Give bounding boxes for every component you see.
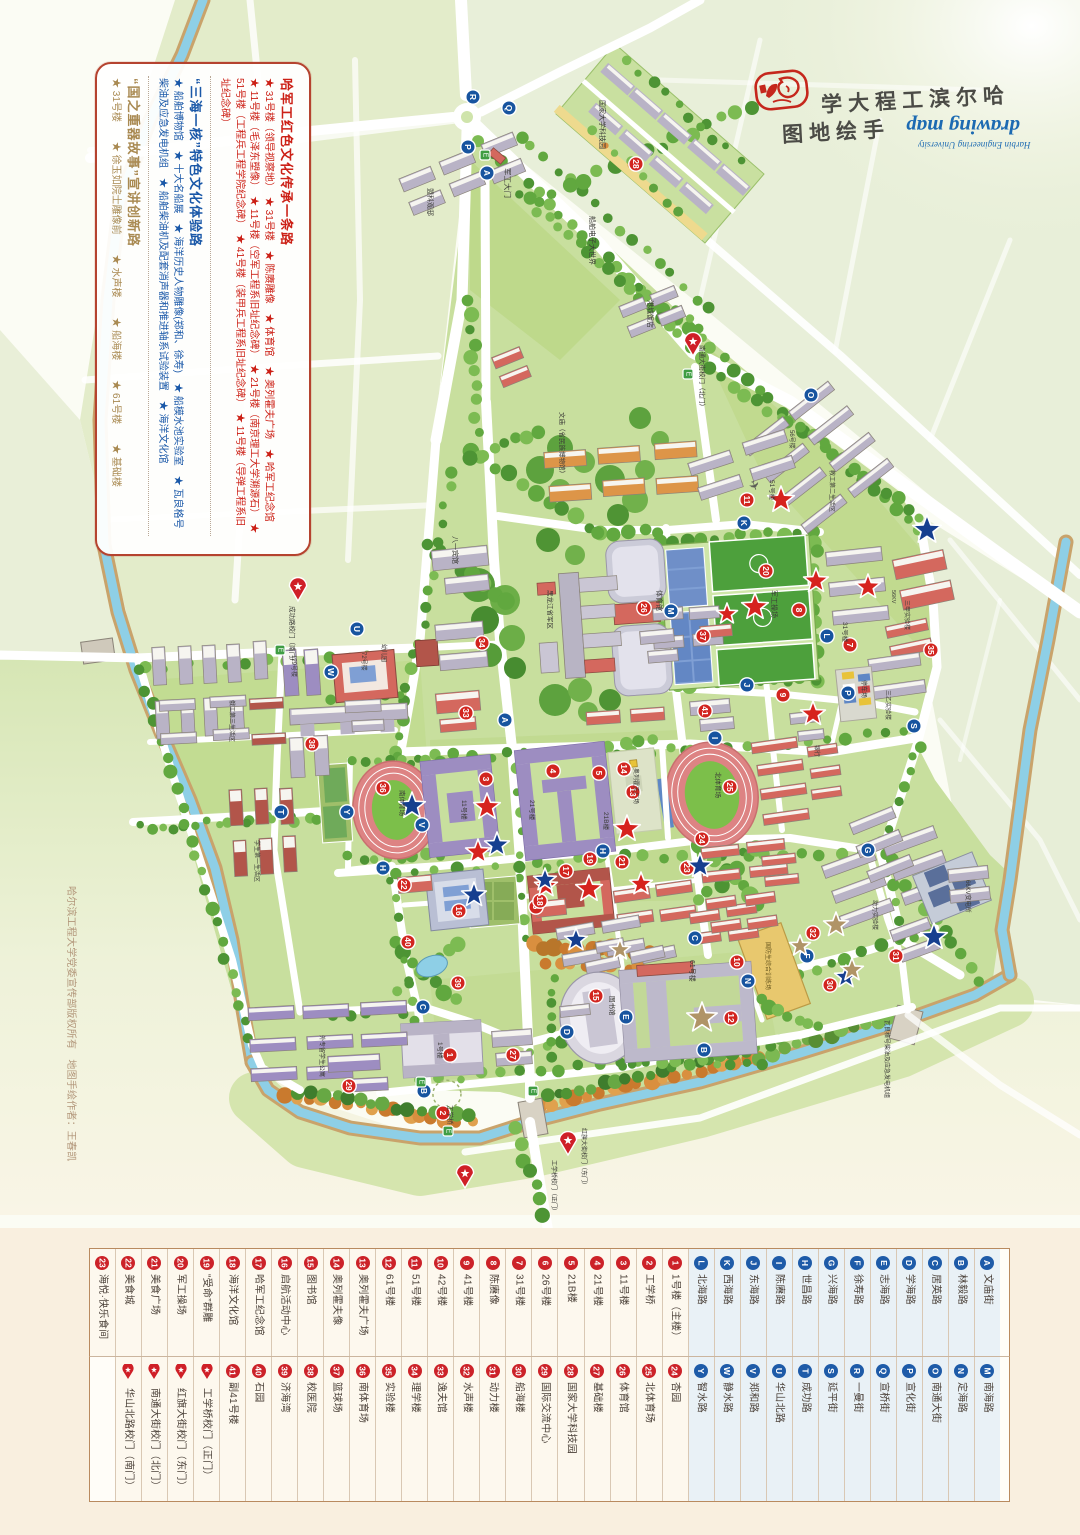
svg-text:国防生综合训练场: 国防生综合训练场: [764, 942, 772, 990]
svg-text:8: 8: [794, 608, 804, 613]
svg-text:56KV: 56KV: [890, 590, 896, 604]
svg-text:M: M: [666, 607, 676, 614]
svg-text:Q: Q: [504, 105, 514, 112]
svg-text:南体育场: 南体育场: [398, 790, 407, 817]
svg-text:S: S: [909, 723, 919, 729]
svg-text:1号楼: 1号楼: [436, 1042, 445, 1059]
svg-text:G: G: [863, 847, 873, 854]
svg-text:4: 4: [548, 769, 558, 774]
svg-text:18: 18: [535, 896, 545, 906]
svg-text:体育馆: 体育馆: [655, 590, 664, 611]
svg-text:21B楼: 21B楼: [602, 812, 611, 831]
svg-text:工学桥: 工学桥: [446, 1105, 455, 1125]
svg-text:11: 11: [742, 496, 752, 505]
svg-text:24: 24: [697, 834, 707, 844]
svg-text:学生第一生活区: 学生第一生活区: [253, 840, 261, 882]
svg-text:19: 19: [585, 854, 595, 864]
svg-text:12: 12: [726, 1013, 736, 1023]
svg-text:动力实验楼: 动力实验楼: [871, 900, 879, 930]
svg-text:T: T: [276, 809, 286, 815]
svg-text:21号楼: 21号楼: [528, 800, 537, 821]
svg-text:37: 37: [698, 631, 708, 641]
svg-text:14: 14: [619, 764, 629, 774]
svg-text:三乙实验楼: 三乙实验楼: [884, 690, 892, 720]
svg-text:31号楼: 31号楼: [841, 622, 850, 643]
svg-text:停车场: 停车场: [860, 680, 868, 698]
svg-text:E: E: [685, 372, 692, 377]
svg-text:俄工第三生活区: 俄工第三生活区: [228, 700, 236, 742]
svg-text:B: B: [419, 1088, 429, 1094]
svg-text:K: K: [739, 520, 749, 527]
svg-text:W: W: [326, 668, 336, 677]
svg-text:15: 15: [591, 991, 601, 1001]
svg-text:11号楼: 11号楼: [460, 800, 469, 820]
svg-text:黑龙江省军区: 黑龙江省军区: [546, 590, 555, 630]
svg-text:27: 27: [508, 1050, 518, 1060]
svg-text:E: E: [277, 648, 284, 653]
svg-text:41: 41: [700, 706, 710, 716]
svg-text:图书馆: 图书馆: [608, 996, 617, 1016]
svg-text:C: C: [418, 1004, 428, 1010]
svg-text:C: C: [690, 935, 700, 941]
svg-text:港城饭店: 港城饭店: [646, 300, 655, 328]
svg-text:31: 31: [891, 951, 901, 961]
svg-text:E: E: [445, 1129, 452, 1134]
svg-text:61号楼: 61号楼: [688, 960, 697, 982]
svg-text:R: R: [468, 94, 478, 100]
svg-text:P: P: [463, 144, 473, 150]
svg-text:L: L: [822, 633, 832, 638]
svg-text:16: 16: [454, 906, 464, 916]
svg-text:P: P: [843, 690, 853, 696]
svg-text:A: A: [482, 170, 492, 176]
svg-text:25: 25: [725, 782, 735, 792]
svg-text:E: E: [418, 1080, 425, 1085]
svg-text:J: J: [742, 683, 752, 688]
svg-text:7: 7: [845, 643, 855, 648]
svg-text:南通大街校门（北门）: 南通大街校门（北门）: [698, 345, 707, 410]
svg-text:外专留学生公寓: 外专留学生公寓: [318, 1035, 326, 1077]
svg-text:A: A: [500, 717, 510, 723]
svg-text:三甲实验楼: 三甲实验楼: [903, 600, 911, 630]
svg-text:E: E: [530, 1089, 537, 1094]
svg-text:Y: Y: [342, 809, 352, 815]
svg-text:36: 36: [378, 783, 388, 793]
svg-text:22: 22: [399, 880, 409, 890]
svg-text:O: O: [806, 392, 816, 399]
svg-text:29: 29: [344, 1081, 354, 1091]
svg-text:10: 10: [732, 957, 742, 967]
svg-text:工学桥校门（正门）: 工学桥校门（正门）: [550, 1160, 558, 1214]
svg-text:39: 39: [453, 978, 463, 988]
svg-text:28: 28: [631, 159, 641, 169]
svg-text:17: 17: [561, 866, 571, 876]
svg-text:八一宾馆: 八一宾馆: [451, 536, 460, 564]
svg-text:U: U: [352, 626, 362, 632]
svg-text:40: 40: [403, 937, 413, 947]
svg-text:文庙（省民族博物馆）: 文庙（省民族博物馆）: [558, 412, 567, 477]
svg-text:军工操场: 军工操场: [770, 590, 779, 618]
svg-text:32: 32: [808, 928, 818, 938]
svg-text:I: I: [710, 737, 720, 739]
svg-text:E: E: [621, 1014, 631, 1020]
svg-text:B: B: [699, 1047, 709, 1053]
svg-text:红旗大街校门（东门）: 红旗大街校门（东门）: [580, 1128, 588, 1188]
svg-text:瓦良格号柴油及应急发电机组: 瓦良格号柴油及应急发电机组: [883, 1020, 891, 1098]
svg-text:72号楼: 72号楼: [360, 652, 368, 671]
svg-text:H: H: [378, 865, 388, 871]
svg-text:5: 5: [594, 771, 604, 776]
svg-text:军工大门: 军工大门: [503, 168, 513, 198]
svg-text:26: 26: [639, 603, 649, 613]
svg-text:H: H: [598, 848, 608, 854]
svg-text:幼儿园: 幼儿园: [380, 644, 388, 662]
svg-text:9: 9: [778, 693, 788, 698]
svg-text:56号楼: 56号楼: [788, 430, 796, 449]
svg-text:1: 1: [445, 1053, 455, 1058]
svg-text:北体育场: 北体育场: [714, 772, 723, 799]
svg-text:33: 33: [461, 708, 471, 718]
svg-text:34: 34: [477, 638, 487, 648]
svg-text:38: 38: [307, 739, 317, 749]
svg-text:30: 30: [825, 980, 835, 990]
svg-text:3: 3: [481, 777, 491, 782]
svg-text:35: 35: [926, 645, 936, 655]
svg-text:D: D: [562, 1029, 572, 1035]
svg-text:51号楼: 51号楼: [768, 480, 777, 501]
svg-text:V: V: [417, 822, 427, 828]
svg-text:国家大学科技园: 国家大学科技园: [598, 100, 607, 149]
svg-text:奥列霍夫广场: 奥列霍夫广场: [632, 768, 640, 804]
svg-text:教工第二生活区: 教工第二生活区: [828, 470, 836, 512]
svg-text:21: 21: [617, 857, 627, 867]
svg-text:66KV变电所: 66KV变电所: [964, 880, 972, 913]
svg-text:银行: 银行: [813, 745, 821, 757]
svg-text:20: 20: [761, 566, 771, 576]
svg-text:盟科观邸: 盟科观邸: [426, 188, 435, 216]
svg-text:E: E: [482, 153, 489, 158]
svg-text:船舶电子大世界: 船舶电子大世界: [588, 216, 597, 265]
svg-text:N: N: [743, 978, 753, 984]
svg-text:129号楼: 129号楼: [290, 655, 298, 677]
